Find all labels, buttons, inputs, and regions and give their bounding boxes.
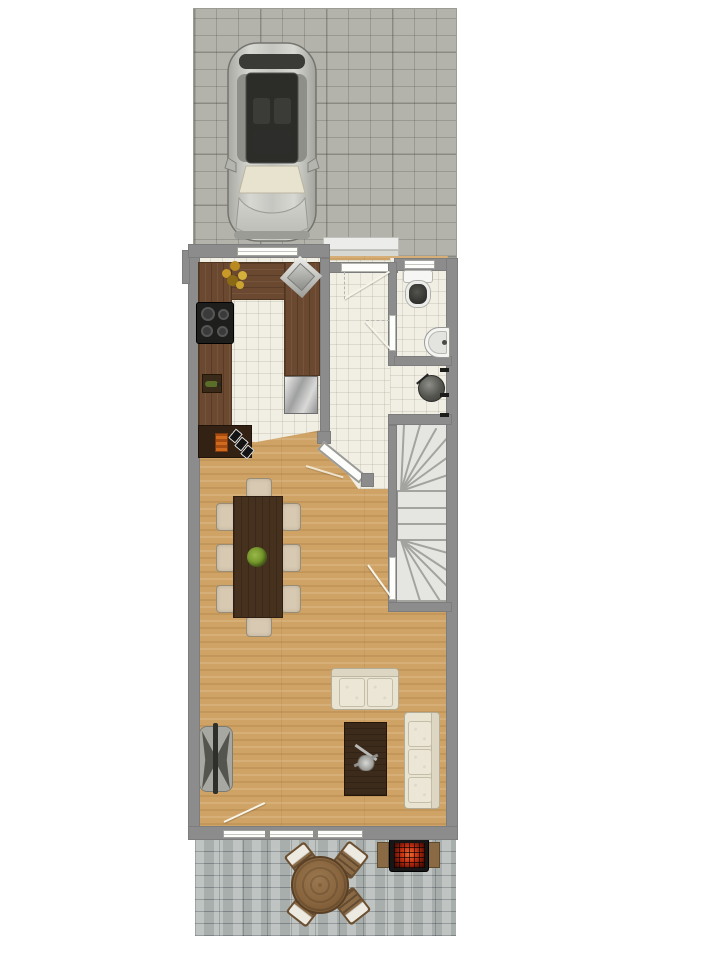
car-top-view: [222, 40, 322, 244]
flower: [236, 281, 244, 289]
dishwasher-front: [284, 376, 318, 414]
coffee-table-decor: [357, 755, 375, 771]
wall-diagonal-stub-b: [361, 473, 374, 487]
car-windshield: [239, 166, 305, 193]
boiler-tank: [418, 375, 445, 402]
washbasin: [424, 327, 450, 358]
dining-chair-bottom: [246, 616, 272, 637]
loveseat-cushion: [339, 678, 365, 707]
toilet-bowl: [406, 281, 430, 307]
bbq-grill-body: [389, 838, 429, 872]
floor-plan: [0, 0, 720, 960]
burner: [217, 326, 228, 337]
burner: [218, 309, 229, 320]
front-door-swing-dash: [344, 272, 345, 299]
radiator-mark: [440, 413, 449, 417]
bbq-shelf-right: [428, 842, 440, 868]
porch-step-upper: [323, 237, 399, 250]
wine-bottle-holder: [202, 374, 222, 393]
car-front-bumper: [234, 231, 310, 239]
radiator-mark: [440, 393, 449, 397]
winder-stairs: [390, 423, 448, 612]
car-seat-rear: [253, 130, 291, 154]
coffee-table: [344, 722, 387, 796]
bbq-shelf-left: [377, 842, 389, 868]
flower: [238, 271, 247, 280]
bathroom-window: [404, 260, 435, 269]
sofa-backrest: [431, 713, 439, 808]
wine-bottle-neck: [217, 383, 221, 386]
window-mullion: [265, 829, 270, 839]
sofa-cushion: [408, 721, 432, 747]
dining-chair-right-2: [281, 544, 301, 572]
sofa-cushion: [408, 777, 432, 803]
bbq-grate-fire: [394, 843, 425, 868]
patio-door-window-band: [223, 830, 363, 838]
car-seat: [274, 98, 291, 124]
loveseat: [331, 668, 399, 710]
sofa-3-seat: [404, 712, 440, 809]
bathroom-door-opening: [389, 315, 396, 351]
flower-vase: [222, 260, 250, 292]
burner: [201, 307, 215, 321]
patio-table-round: [291, 856, 349, 914]
flower: [230, 261, 240, 271]
window-mullion: [313, 829, 318, 839]
front-door-opening: [341, 263, 389, 272]
sideboard-decor-orange: [215, 433, 228, 452]
dining-chair-right-3: [281, 585, 301, 613]
sink-basin: [287, 263, 315, 291]
bathroom-door-swing-dash: [366, 320, 390, 321]
cooktop: [196, 302, 234, 344]
loveseat-cushion: [367, 678, 393, 707]
stairwell: [390, 423, 448, 612]
kitchen-window: [237, 247, 298, 256]
wall-stair-bottom: [388, 602, 452, 612]
car-seat: [253, 98, 270, 124]
tv-screen: [213, 723, 218, 794]
dining-chair-right-1: [281, 503, 301, 531]
sofa-cushion: [408, 749, 432, 775]
loveseat-backrest: [332, 669, 398, 677]
washbasin-tap: [442, 340, 447, 345]
sideboard: [198, 425, 252, 458]
table-plant-centerpiece: [247, 547, 267, 567]
radiator-mark: [440, 368, 449, 372]
burner: [201, 325, 213, 337]
car-rear-window: [239, 54, 305, 69]
wall-kitchen-hall-divider: [320, 258, 330, 438]
tv-speaker-wing: [217, 731, 230, 789]
